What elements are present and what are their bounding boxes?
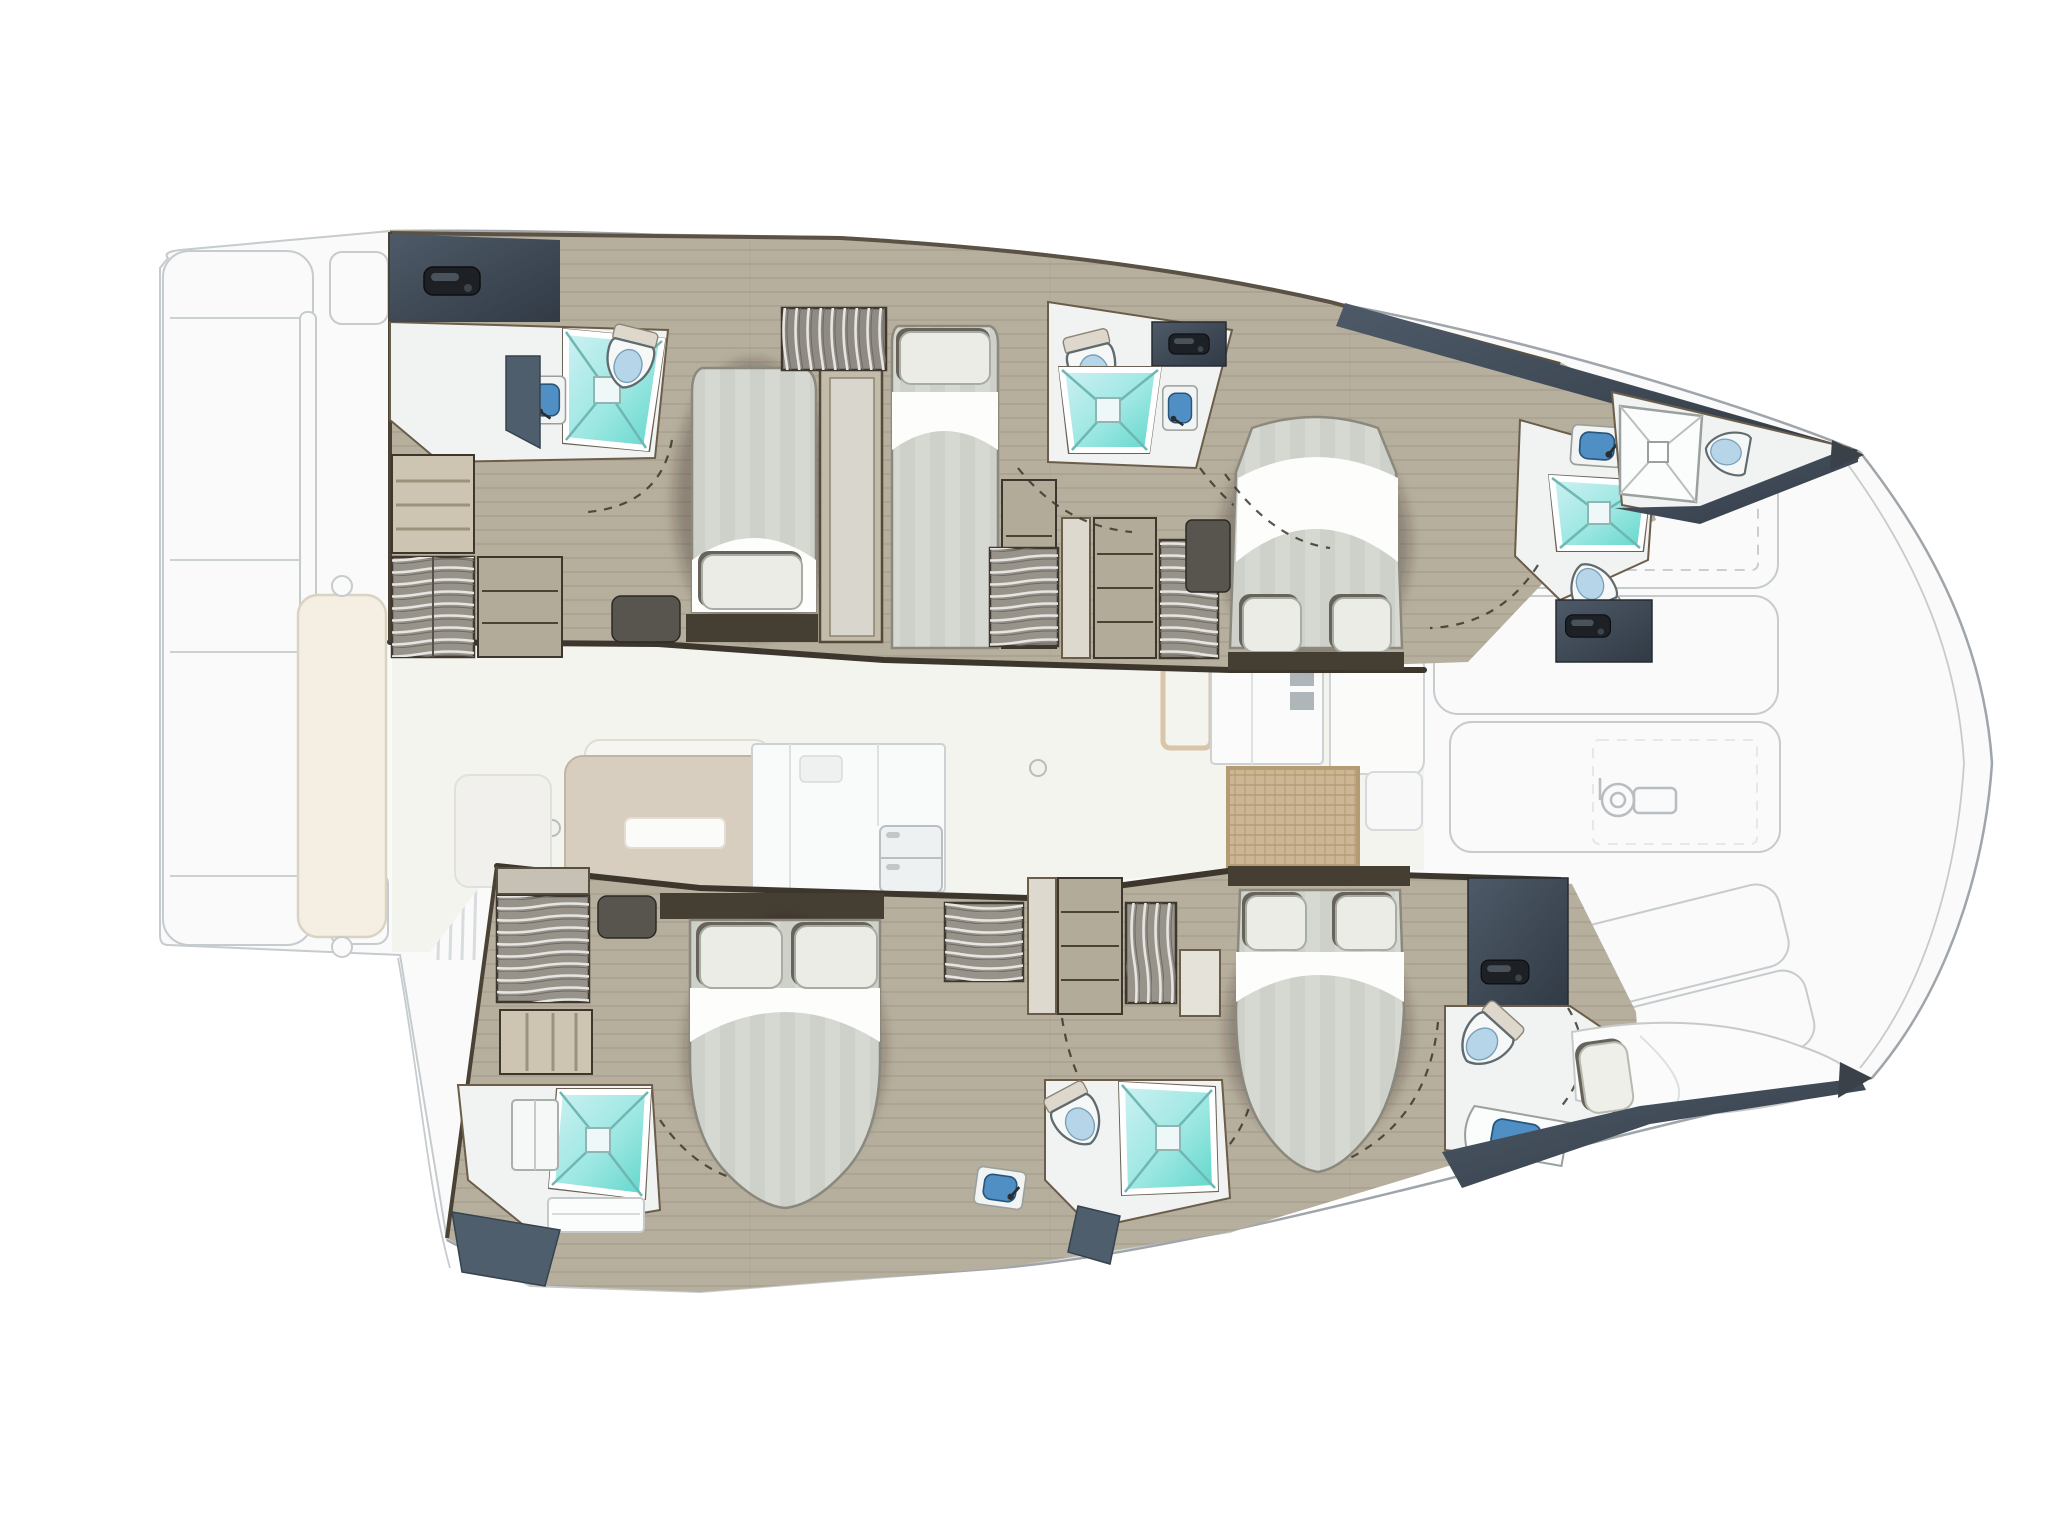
port-hull	[390, 230, 1864, 670]
door-handle	[1566, 615, 1611, 637]
nightstand	[612, 596, 680, 642]
shelf-unit	[1094, 518, 1156, 658]
table-post	[1030, 760, 1046, 776]
hanging-locker	[990, 548, 1058, 646]
galley	[752, 744, 945, 892]
transom-bench	[298, 576, 386, 957]
shower	[1058, 366, 1162, 454]
hanging-locker	[945, 903, 1023, 981]
pillow	[1333, 598, 1391, 652]
transom-step	[330, 252, 388, 324]
berth-base	[1228, 652, 1404, 670]
hanging-locker	[497, 896, 589, 1002]
shower	[1118, 1081, 1219, 1196]
hanging-locker	[1126, 903, 1176, 1003]
washbasin	[973, 1166, 1026, 1210]
door-handle	[1481, 960, 1529, 984]
door-handle	[1169, 334, 1209, 354]
shelf-unit	[478, 557, 562, 657]
berth-base	[686, 614, 818, 642]
hanging-locker	[392, 557, 474, 657]
pillow	[702, 555, 802, 609]
shower-tray	[1620, 406, 1702, 502]
floor-plan-canvas	[0, 0, 2048, 1536]
sofa-table-slot	[625, 818, 725, 848]
pillow	[1578, 1041, 1635, 1115]
pillow	[1336, 896, 1396, 950]
washbasin	[1163, 386, 1197, 430]
port-aft-cabin	[674, 360, 834, 642]
slate-door	[1468, 878, 1568, 1006]
swim-platform	[163, 251, 316, 945]
vanity-seat	[1186, 520, 1230, 592]
stbd-entry-units	[497, 868, 592, 1074]
nightstand	[598, 896, 656, 938]
shelf-unit	[1058, 878, 1122, 1014]
pillow	[900, 332, 990, 384]
pillow	[795, 926, 877, 988]
rattan-mat	[1228, 768, 1358, 866]
shower	[548, 1088, 652, 1200]
door-handle	[424, 267, 480, 295]
catamaran-plan-svg	[0, 0, 2048, 1536]
hanging-locker	[782, 308, 886, 370]
pillow	[700, 926, 782, 988]
steps	[500, 1010, 592, 1074]
pillow	[1246, 896, 1306, 950]
berth-base	[1228, 866, 1410, 886]
refrigerator	[880, 826, 942, 892]
berth-base	[660, 893, 884, 919]
pillow	[1243, 598, 1301, 652]
